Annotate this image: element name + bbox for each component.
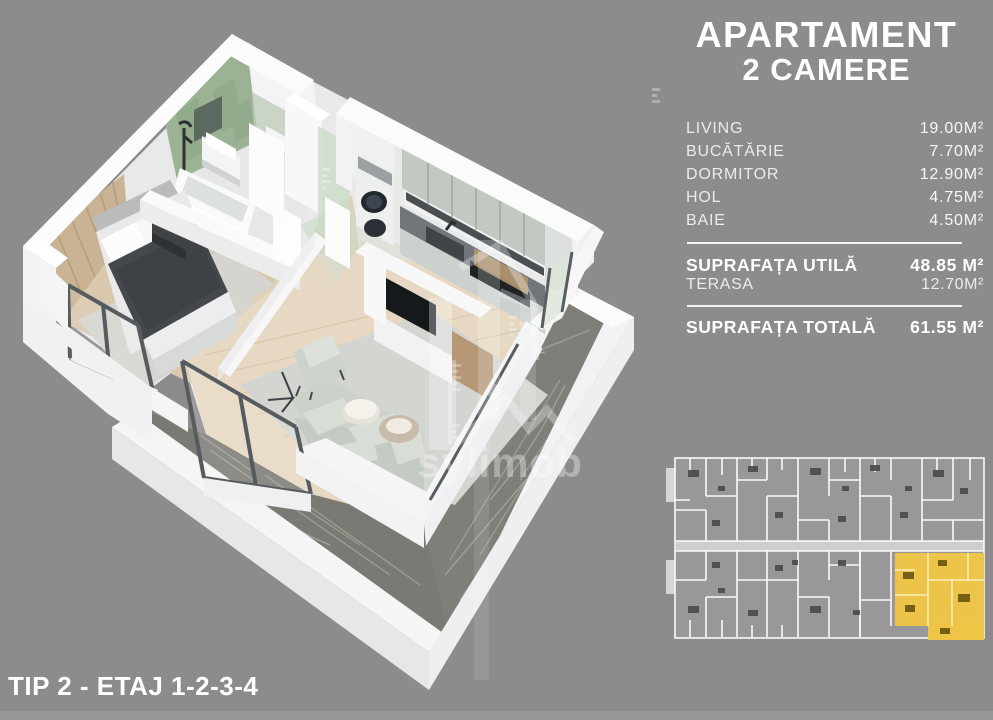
svg-text:sylimob: sylimob xyxy=(417,439,583,486)
